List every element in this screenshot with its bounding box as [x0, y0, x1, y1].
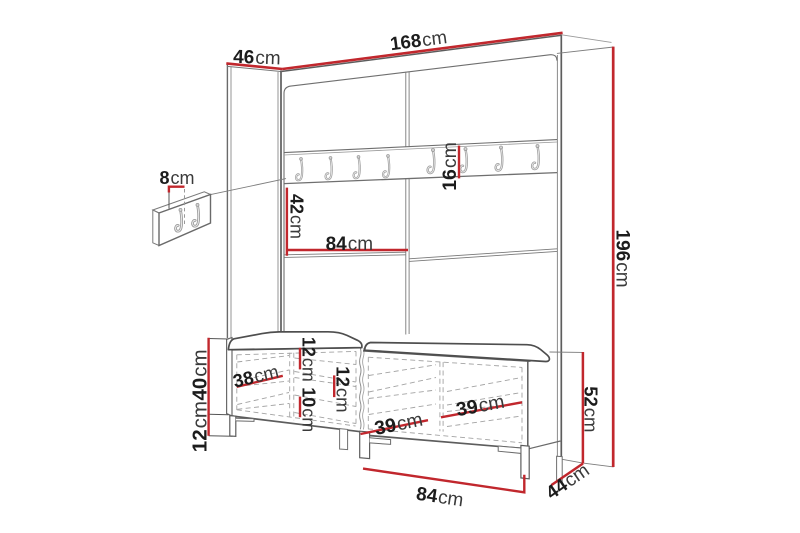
svg-text:8cm: 8cm [160, 168, 195, 188]
svg-text:196cm: 196cm [612, 230, 633, 288]
svg-text:10cm: 10cm [299, 387, 319, 432]
svg-text:12cm: 12cm [188, 401, 211, 452]
svg-text:12cm: 12cm [299, 337, 319, 382]
svg-text:84cm: 84cm [326, 234, 373, 255]
svg-text:16cm: 16cm [439, 142, 461, 191]
svg-text:40cm: 40cm [188, 349, 211, 400]
svg-text:12cm: 12cm [333, 366, 354, 412]
svg-text:46cm: 46cm [233, 47, 281, 70]
svg-text:52cm: 52cm [580, 386, 601, 432]
svg-text:42cm: 42cm [287, 194, 307, 239]
